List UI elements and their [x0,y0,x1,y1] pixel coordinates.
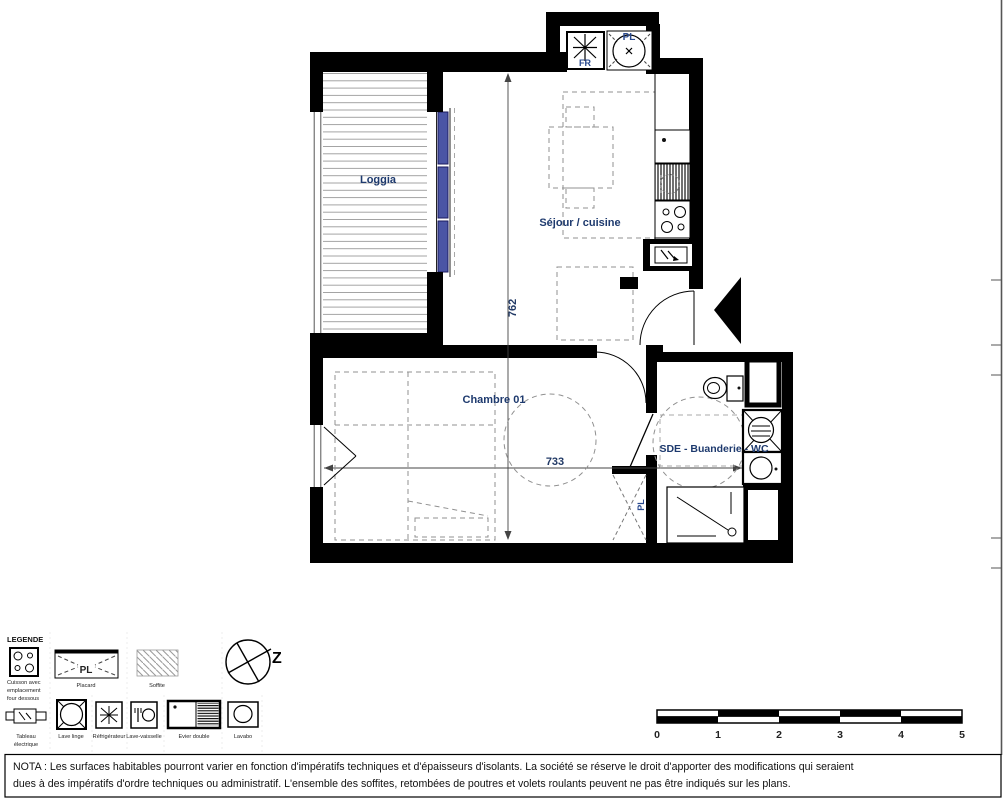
svg-text:Lave linge: Lave linge [58,734,84,740]
entry-door-arc [640,291,694,345]
svg-text:4: 4 [898,729,904,741]
loggia-decking [323,72,427,333]
fridge-label: FR [579,58,591,68]
double-sink-drainer-icon [655,164,690,200]
legend-item-lavabo: Lavabo [228,702,258,740]
entry-placard-label: PL [623,32,636,43]
legend-item-cuisson: Cuisson avec emplacement four dessous [7,648,41,702]
entry-placard-icon: PL [607,31,652,70]
chambre-placard-icon: PL [613,475,646,540]
legend-placard-symbol: PL [80,665,93,676]
svg-text:Evier double: Evier double [178,734,209,740]
floor-plan-drawing: 762 733 [0,0,1006,800]
shower-icon [667,487,744,543]
svg-text:Soffite: Soffite [149,683,165,689]
electrical-panel-icon [643,239,700,271]
fridge-icon: FR [567,32,604,69]
svg-text:Réfrigérateur: Réfrigérateur [93,734,126,740]
dimension-762: 762 [505,73,520,540]
legend-item-placard: PL Placard [55,650,118,689]
dimension-733: 733 [324,456,780,472]
svg-text:1: 1 [715,729,721,741]
bay-window-icon [437,108,455,277]
legend-item-evier: Evier double [168,701,220,740]
svg-text:Lave-vaisselle: Lave-vaisselle [126,734,161,740]
room-label-sejour: Séjour / cuisine [539,217,620,229]
drawing-frame [991,0,1002,755]
svg-text:four dessous: four dessous [7,696,39,702]
turning-circle [504,394,596,486]
legend-item-tableau: Tableau électrique [6,709,46,748]
svg-text:Lavabo: Lavabo [234,734,252,740]
svg-text:5: 5 [959,729,965,741]
duct-box [747,360,779,405]
svg-text:3: 3 [837,729,843,741]
svg-text:2: 2 [776,729,782,741]
dim-733-text: 733 [546,456,564,468]
svg-text:emplacement: emplacement [7,688,41,694]
room-label-chambre: Chambre 01 [463,394,526,406]
svg-text:Tableau: Tableau [16,734,36,740]
entrance-arrow [714,277,741,344]
dining-table-icon [549,107,613,208]
legend: LEGENDE Cuisson avec emplacement four de… [6,632,282,752]
legend-item-lave-vaisselle: Lave-vaisselle [126,702,161,740]
sde-soffite-outline [660,415,744,466]
nota-line2: dues à des impératifs d'ordre techniques… [13,778,791,790]
north-letter: Z [272,650,282,667]
room-label-loggia: Loggia [360,174,397,186]
nota-line1: NOTA : Les surfaces habitables pourront … [13,761,854,773]
svg-text:Cuisson avec: Cuisson avec [7,680,41,686]
sde-cabinet [748,490,778,540]
plan-area: 762 733 [310,12,793,563]
cooktop-icon [655,201,690,238]
legend-item-lave-linge: Lave linge [57,700,86,740]
svg-text:0: 0 [654,729,660,741]
north-compass-icon: Z [226,640,282,684]
scale-bar: 0 1 2 3 4 5 [654,710,965,741]
chambre-placard-label: PL [636,499,646,511]
legend-item-refrigerateur: Réfrigérateur [93,702,126,740]
svg-text:électrique: électrique [14,742,38,748]
legend-item-soffite: Soffite [137,650,178,689]
svg-text:Placard: Placard [77,683,96,689]
room-label-sde: SDE - Buanderie - WC [659,443,769,455]
washbasin-icon [743,452,782,484]
legend-title: LEGENDE [7,635,43,644]
toilet-icon [704,376,744,401]
dim-762-text: 762 [507,299,519,317]
chambre-door-arc [595,352,646,403]
sejour-room [549,92,655,340]
floor-plan-page: 762 733 [0,0,1006,800]
sink-cabinet-icon [655,130,690,163]
nota-box: NOTA : Les surfaces habitables pourront … [5,755,1001,798]
